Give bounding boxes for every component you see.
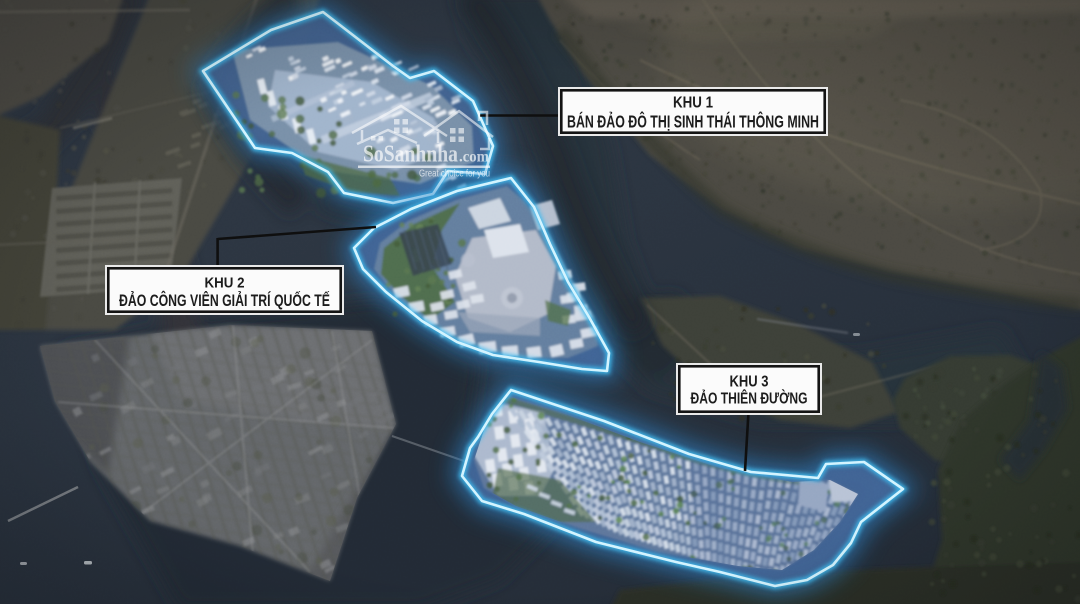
svg-text:Great choice for you: Great choice for you xyxy=(419,168,490,180)
svg-text:KHU 3: KHU 3 xyxy=(730,374,769,391)
svg-text:KHU 2: KHU 2 xyxy=(205,275,245,292)
svg-text:SoSanhnha: SoSanhnha xyxy=(363,142,458,168)
svg-text:ĐẢO THIÊN ĐƯỜNG: ĐẢO THIÊN ĐƯỜNG xyxy=(691,389,808,408)
svg-text:KHU 1: KHU 1 xyxy=(673,95,713,112)
svg-text:ĐẢO CÔNG VIÊN GIẢI TRÍ QUỐC TẾ: ĐẢO CÔNG VIÊN GIẢI TRÍ QUỐC TẾ xyxy=(119,290,330,310)
svg-text:BÁN ĐẢO ĐÔ THỊ SINH THÁI THÔNG: BÁN ĐẢO ĐÔ THỊ SINH THÁI THÔNG MINH xyxy=(567,111,819,132)
svg-text:.com: .com xyxy=(459,149,490,166)
